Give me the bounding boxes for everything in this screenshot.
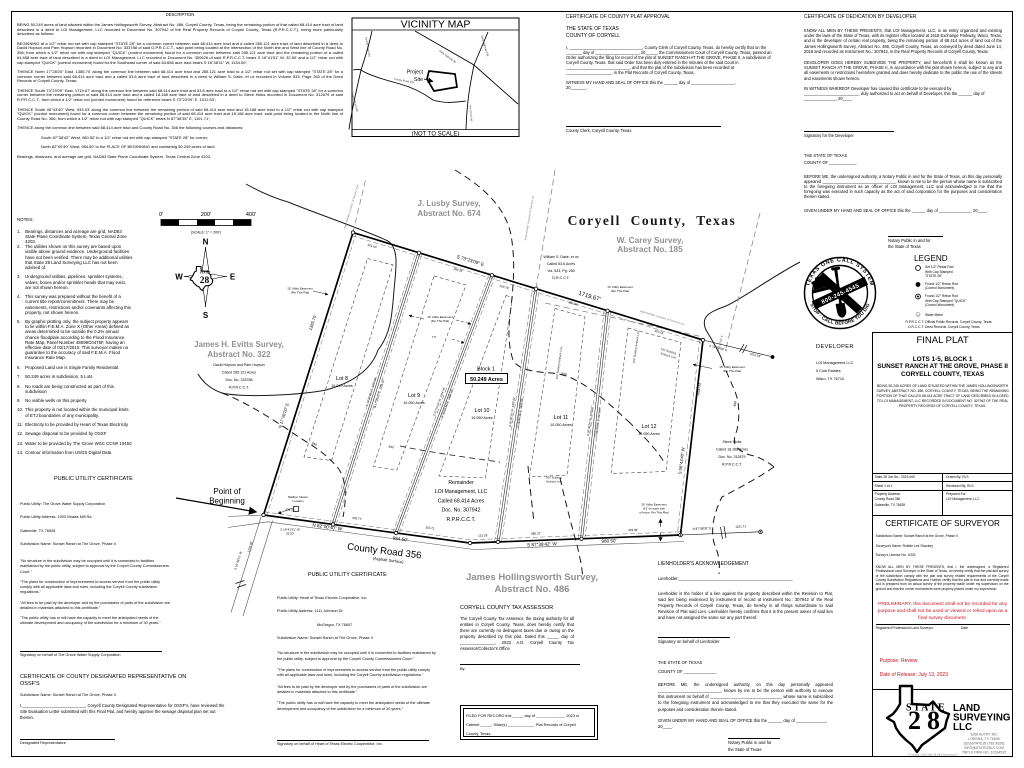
svg-text:Location: Location [293,499,304,503]
svg-text:Site: Site [414,77,423,83]
svg-text:840: 840 [388,445,394,450]
svg-text:R.P.R.C.C.T.: R.P.R.C.C.T. [229,386,249,390]
svg-text:Called 285.121 Acres: Called 285.121 Acres [222,371,256,375]
svg-text:STATE: STATE [200,271,209,275]
svg-text:10.049 Acres: 10.049 Acres [331,384,353,388]
svg-text:321.60': 321.60' [367,243,378,250]
svg-text:Remainder: Remainder [448,480,474,486]
svg-text:1012.53': 1012.53' [749,352,761,359]
svg-text:980.50': 980.50' [601,538,616,544]
svg-text:32.50': 32.50' [286,532,295,536]
svg-text:Lot 9: Lot 9 [408,393,420,399]
svg-text:(Per This Plat): (Per This Plat) [291,291,309,295]
svg-text:Abstract No. 185: Abstract No. 185 [617,244,683,254]
svg-text:984.50': 984.50' [392,535,408,542]
svg-text:R.P.R.C.C.T.: R.P.R.C.C.T. [722,463,742,467]
svg-text:Point of: Point of [213,487,241,496]
svg-text:Approximate Location of Survey: Approximate Location of Survey Line [523,195,535,241]
svg-text:218.79': 218.79' [499,284,510,291]
svg-text:50.249 Acres: 50.249 Acres [470,377,503,383]
svg-text:200': 200' [201,212,211,218]
svg-text:William S. Dake, et ux: William S. Dake, et ux [543,255,578,259]
svg-text:10.050 Acres: 10.050 Acres [638,432,660,436]
svg-text:N 82°00'40" W: N 82°00'40" W [312,522,343,531]
svg-text:S 06°43'40" W: S 06°43'40" W [677,447,685,474]
svg-text:N 06°36'26" E 1205.82': N 06°36'26" E 1205.82' [516,397,524,427]
svg-text:423.61': 423.61' [654,329,665,336]
svg-text:(Per This Plat): (Per This Plat) [431,319,449,323]
svg-text:Block 1: Block 1 [477,367,495,373]
svg-text:933.03': 933.03' [695,382,702,396]
svg-text:of fence: Per This Plat): of fence: Per This Plat) [639,511,668,515]
svg-text:459.09': 459.09' [628,528,638,532]
svg-text:Abstract No. 486: Abstract No. 486 [495,584,570,595]
svg-text:Approximate Location of Survey: Approximate Location of Survey Line [342,184,359,229]
svg-text:James Hollingsworth Survey,: James Hollingsworth Survey, [466,572,598,583]
svg-text:7.5': 7.5' [432,335,437,339]
svg-text:28: 28 [200,276,210,286]
svg-text:Coryell County, Texas: Coryell County, Texas [568,213,737,228]
svg-text:Vol. 533, Pg. 260: Vol. 533, Pg. 260 [547,269,574,273]
svg-text:Called 53.6 Acres: Called 53.6 Acres [547,262,575,266]
svg-text:(Per This Plat): (Per This Plat) [611,289,629,293]
svg-text:326.22': 326.22' [285,507,296,512]
svg-text:Lot 8: Lot 8 [336,376,348,382]
svg-text:Doc. No. 333788: Doc. No. 333788 [226,378,253,382]
svg-text:James H. Evitts Survey,: James H. Evitts Survey, [194,340,284,349]
svg-text:302.77': 302.77' [352,516,363,521]
svg-text:LOI Management, LLC: LOI Management, LLC [435,489,488,495]
svg-text:(Per This Plat): (Per This Plat) [723,369,741,373]
svg-text:Abstract No. 674: Abstract No. 674 [417,209,481,218]
svg-text:D.R.C.C.T.: D.R.C.C.T. [552,276,569,280]
svg-text:S 87°38'42" W: S 87°38'42" W [527,541,557,547]
svg-text:Called 18.168 Acres: Called 18.168 Acres [716,448,748,452]
svg-text:S 06°36'26" W 1078.67': S 06°36'26" W 1078.67' [586,405,594,436]
svg-text:0': 0' [159,212,163,218]
svg-text:R.P.R.C.C.T.: R.P.R.C.C.T. [446,517,475,523]
svg-text:Steve Hicks: Steve Hicks [723,440,742,444]
svg-text:131.18': 131.18' [478,533,488,537]
svg-text:(NOT TO SCALE): (NOT TO SCALE) [412,131,460,137]
svg-text:N 87°38'35" E: N 87°38'35" E [693,526,712,531]
svg-text:1134.00': 1134.00' [246,540,253,552]
svg-text:Project: Project [407,70,424,76]
svg-text:10.050 Acres: 10.050 Acres [471,416,493,420]
svg-text:(SCALE: 1" = 200'): (SCALE: 1" = 200') [191,231,221,235]
svg-text:VICINITY MAP: VICINITY MAP [401,19,471,31]
svg-text:Lot 12: Lot 12 [642,424,657,430]
svg-text:Lot 11: Lot 11 [554,415,569,421]
svg-text:380.22': 380.22' [531,531,541,535]
svg-text:Doc. No. 307942: Doc. No. 307942 [442,508,481,514]
svg-text:1101.71': 1101.71' [735,524,747,528]
svg-text:W: W [175,273,183,282]
svg-text:Called 68.414 Acres: Called 68.414 Acres [438,498,485,504]
svg-text:820: 820 [561,372,567,377]
svg-text:Abstract No. 322: Abstract No. 322 [207,350,271,359]
svg-text:10.050 Acres: 10.050 Acres [550,423,572,427]
svg-text:S: S [203,311,209,320]
svg-text:Setback Line: Setback Line [546,480,563,484]
svg-text:Approximate Location of Survey: Approximate Location of Survey Line [640,309,685,326]
svg-text:10.050 Acres: 10.050 Acres [403,401,425,405]
svg-text:368.31': 368.31' [453,267,464,274]
svg-text:1385.70': 1385.70' [308,314,318,331]
svg-text:Beginning: Beginning [209,497,245,506]
svg-text:Lot 10: Lot 10 [475,408,490,414]
svg-text:100' Building Setback Line: 100' Building Setback Line [632,330,641,364]
svg-text:N 17°28'20" E: N 17°28'20" E [277,402,290,429]
svg-text:S 16°48'11" W: S 16°48'11" W [233,551,243,571]
svg-text:400': 400' [246,212,256,218]
svg-text:E: E [230,273,236,282]
svg-text:800: 800 [733,401,738,407]
svg-text:1719.67': 1719.67' [577,291,601,303]
svg-text:J. Lusby Survey,: J. Lusby Survey, [418,199,481,208]
svg-text:Doc. No. 312679: Doc. No. 312679 [719,455,746,459]
svg-text:N: N [203,238,209,247]
svg-text:David Hopson and Pam Hopson: David Hopson and Pam Hopson [213,363,264,367]
svg-text:355.71': 355.71' [425,525,436,530]
